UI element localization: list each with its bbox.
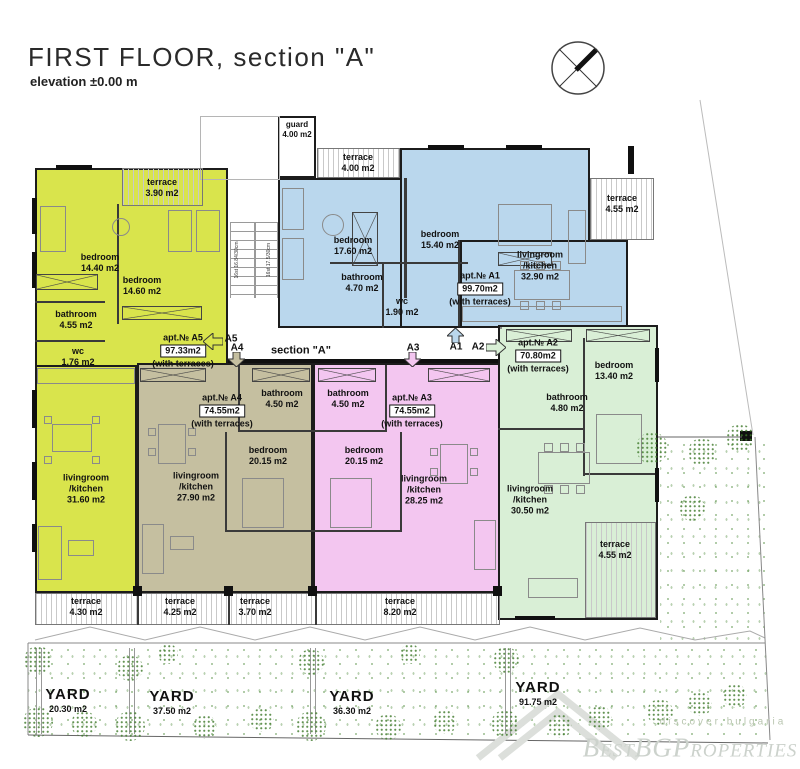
room-label-bathroom: bathroom4.50 m2 bbox=[327, 388, 369, 410]
room-name: bedroom bbox=[334, 235, 373, 245]
room-area: 4.25 m2 bbox=[163, 607, 196, 617]
chair-icon bbox=[188, 448, 196, 456]
bush-icon bbox=[433, 710, 457, 734]
sofa-icon bbox=[528, 578, 578, 598]
room-label-bedroom: bedroom14.60 m2 bbox=[123, 275, 162, 297]
yard-name: YARD bbox=[149, 688, 194, 705]
room-area: 4.50 m2 bbox=[265, 399, 298, 409]
floor-plan: FIRST FLOOR, section "A" elevation ±0.00… bbox=[0, 0, 800, 769]
wall bbox=[404, 178, 407, 298]
room-label-livingroom: livingroom/kitchen32.90 m2 bbox=[517, 250, 563, 283]
room-label-bedroom: bedroom15.40 m2 bbox=[421, 229, 460, 251]
entry-lobby bbox=[200, 116, 280, 180]
room-name: bedroom bbox=[595, 360, 634, 370]
bush-icon bbox=[400, 644, 420, 664]
bush-icon bbox=[491, 710, 519, 738]
arrow-label-a1: A1 bbox=[450, 342, 463, 353]
apt-number: apt.№ A2 bbox=[518, 338, 558, 348]
bush-icon bbox=[726, 424, 754, 452]
room-name: terrace bbox=[71, 596, 101, 606]
room-name: /kitchen bbox=[513, 495, 547, 505]
wall bbox=[35, 340, 105, 342]
apt-note: (with terraces) bbox=[507, 364, 569, 374]
room-name: bedroom bbox=[421, 229, 460, 239]
bush-icon bbox=[250, 708, 274, 732]
room-name: bathroom bbox=[341, 272, 383, 282]
apt-number: apt.№ A3 bbox=[392, 393, 432, 403]
room-name: bedroom bbox=[345, 445, 384, 455]
stair-divider bbox=[254, 222, 256, 298]
wall bbox=[313, 430, 387, 432]
sofa-icon bbox=[38, 526, 62, 580]
apt-number: apt.№ A1 bbox=[460, 271, 500, 281]
room-label-bathroom: bathroom4.50 m2 bbox=[261, 388, 303, 410]
yard-label: YARD20.30 m2 bbox=[45, 688, 90, 716]
kitchen-counter-icon bbox=[37, 368, 135, 384]
stair-spec-label: 16st 16.84/30cm bbox=[234, 242, 240, 279]
window-mark bbox=[628, 146, 634, 174]
bed-icon bbox=[596, 414, 642, 464]
bush-icon bbox=[636, 432, 668, 464]
room-area: 3.90 m2 bbox=[145, 188, 178, 198]
room-label-wc: wc1.76 m2 bbox=[61, 346, 94, 368]
room-name: livingroom bbox=[507, 484, 553, 494]
wall bbox=[330, 262, 468, 264]
room-name: livingroom bbox=[63, 473, 109, 483]
room-name: terrace bbox=[165, 596, 195, 606]
bush-icon bbox=[493, 647, 519, 673]
elevation-label: elevation ±0.00 m bbox=[30, 74, 138, 89]
bush-icon bbox=[193, 715, 217, 739]
room-label-livingroom: livingroom/kitchen30.50 m2 bbox=[507, 484, 553, 517]
bed-icon bbox=[242, 478, 284, 528]
room-label-bedroom: bedroom20.15 m2 bbox=[345, 445, 384, 467]
chair-icon bbox=[470, 448, 478, 456]
room-area: 14.40 m2 bbox=[81, 263, 119, 273]
room-area: 20.15 m2 bbox=[345, 456, 383, 466]
room-name: livingroom bbox=[401, 474, 447, 484]
room-name: bedroom bbox=[123, 275, 162, 285]
wardrobe-icon bbox=[252, 368, 310, 382]
chair-icon bbox=[470, 468, 478, 476]
arrow-label-a2: A2 bbox=[472, 342, 485, 353]
apartment-label-a4: apt.№ A474.55m2(with terraces) bbox=[191, 393, 253, 430]
chair-icon bbox=[560, 485, 569, 494]
apartment-label-a3: apt.№ A374.55m2(with terraces) bbox=[381, 393, 443, 430]
room-label-bedroom: bedroom17.60 m2 bbox=[334, 235, 373, 257]
wardrobe-icon bbox=[318, 368, 376, 382]
table-icon bbox=[158, 424, 186, 464]
table-icon bbox=[112, 218, 130, 236]
yard-label: YARD91.75 m2 bbox=[515, 681, 560, 709]
room-name: bathroom bbox=[261, 388, 303, 398]
room-label-bedroom: bedroom20.15 m2 bbox=[249, 445, 288, 467]
room-area: 32.90 m2 bbox=[521, 272, 559, 282]
window-mark bbox=[32, 462, 37, 500]
room-name: guard bbox=[286, 120, 308, 129]
chair-icon bbox=[148, 428, 156, 436]
apt-area: 74.55m2 bbox=[199, 405, 245, 418]
yard-label: YARD36.30 m2 bbox=[329, 690, 374, 718]
chair-icon bbox=[576, 443, 585, 452]
room-name: wc bbox=[396, 296, 408, 306]
terrace-label: terrace4.55 m2 bbox=[605, 193, 638, 215]
chair-icon bbox=[576, 485, 585, 494]
bush-icon bbox=[375, 714, 401, 740]
room-area: 13.40 m2 bbox=[595, 371, 633, 381]
bed-icon bbox=[40, 206, 66, 252]
sofa-icon bbox=[568, 210, 586, 264]
wardrobe-icon bbox=[428, 368, 490, 382]
terrace-label: terrace4.55 m2 bbox=[598, 539, 631, 561]
room-name: /kitchen bbox=[69, 484, 103, 494]
chair-icon bbox=[544, 443, 553, 452]
apt-note: (with terraces) bbox=[152, 359, 214, 369]
room-area: 30.50 m2 bbox=[511, 506, 549, 516]
room-name: bathroom bbox=[327, 388, 369, 398]
yard-name: YARD bbox=[515, 679, 560, 696]
page-title: FIRST FLOOR, section "A" bbox=[28, 42, 375, 73]
room-label-livingroom: livingroom/kitchen31.60 m2 bbox=[63, 473, 109, 506]
column bbox=[224, 586, 233, 596]
sofa-icon bbox=[142, 524, 164, 574]
room-area: 4.55 m2 bbox=[59, 320, 92, 330]
arrow-a2-icon bbox=[486, 339, 506, 356]
yard-name: YARD bbox=[45, 686, 90, 703]
bush-icon bbox=[298, 649, 324, 675]
room-label-livingroom: livingroom/kitchen27.90 m2 bbox=[173, 471, 219, 504]
chair-icon bbox=[92, 456, 100, 464]
window-mark bbox=[515, 616, 555, 620]
wardrobe-icon bbox=[122, 306, 202, 320]
room-name: terrace bbox=[147, 177, 177, 187]
terrace-label: terrace4.25 m2 bbox=[163, 596, 196, 618]
apartment-label-a1: apt.№ A199.70m2(with terraces) bbox=[449, 271, 511, 308]
wall bbox=[238, 430, 313, 432]
room-label-bedroom: bedroom13.40 m2 bbox=[595, 360, 634, 382]
bush-icon bbox=[548, 714, 572, 738]
terrace-label: terrace8.20 m2 bbox=[383, 596, 416, 618]
room-name: /kitchen bbox=[179, 482, 213, 492]
terrace-divider bbox=[315, 593, 317, 625]
wall bbox=[583, 473, 658, 475]
table-icon bbox=[322, 214, 344, 236]
wall bbox=[35, 301, 105, 303]
wall bbox=[225, 530, 313, 532]
yard-area: 37.50 m2 bbox=[153, 706, 191, 716]
room-label-guard: guard4.00 m2 bbox=[282, 120, 311, 140]
room-name: terrace bbox=[607, 193, 637, 203]
room-area: 4.00 m2 bbox=[341, 163, 374, 173]
column bbox=[133, 586, 142, 596]
terrace-divider bbox=[228, 593, 230, 625]
room-area: 17.60 m2 bbox=[334, 246, 372, 256]
apartment-label-a2: apt.№ A270.80m2(with terraces) bbox=[507, 338, 569, 375]
coffee-table-icon bbox=[170, 536, 194, 550]
room-area: 14.60 m2 bbox=[123, 286, 161, 296]
yard-label: YARD37.50 m2 bbox=[149, 690, 194, 718]
terrace-label: terrace3.90 m2 bbox=[145, 177, 178, 199]
yard-area: 36.30 m2 bbox=[333, 706, 371, 716]
watermark-tagline: discover bulgaria bbox=[660, 717, 787, 728]
room-name: wc bbox=[72, 346, 84, 356]
sofa-icon bbox=[474, 520, 496, 570]
room-name: livingroom bbox=[517, 250, 563, 260]
window-mark bbox=[655, 348, 659, 382]
room-label-bedroom: bedroom14.40 m2 bbox=[81, 252, 120, 274]
bed-icon bbox=[330, 478, 372, 528]
wardrobe-icon bbox=[36, 274, 98, 290]
room-name: terrace bbox=[240, 596, 270, 606]
room-area: 3.70 m2 bbox=[238, 607, 271, 617]
bush-icon bbox=[588, 706, 612, 730]
bush-icon bbox=[679, 495, 705, 521]
chair-icon bbox=[44, 456, 52, 464]
table-icon bbox=[52, 424, 92, 452]
room-name: terrace bbox=[385, 596, 415, 606]
apt-number: apt.№ A4 bbox=[202, 393, 242, 403]
room-name: /kitchen bbox=[523, 261, 557, 271]
room-area: 4.00 m2 bbox=[282, 130, 311, 139]
chair-icon bbox=[430, 448, 438, 456]
bush-icon bbox=[24, 646, 52, 674]
bed-icon bbox=[282, 188, 304, 230]
column bbox=[308, 586, 317, 596]
bed-icon bbox=[168, 210, 192, 252]
terrace-label: terrace4.00 m2 bbox=[341, 152, 374, 174]
terrace-label: terrace3.70 m2 bbox=[238, 596, 271, 618]
chair-icon bbox=[560, 443, 569, 452]
bush-icon bbox=[115, 711, 145, 741]
apt-note: (with terraces) bbox=[449, 297, 511, 307]
bed-icon bbox=[282, 238, 304, 280]
coffee-table-icon bbox=[68, 540, 94, 556]
room-name: bedroom bbox=[81, 252, 120, 262]
yard-name: YARD bbox=[329, 688, 374, 705]
room-label-livingroom: livingroom/kitchen28.25 m2 bbox=[401, 474, 447, 507]
window-mark bbox=[56, 165, 92, 170]
room-name: bedroom bbox=[249, 445, 288, 455]
apt-area: 70.80m2 bbox=[515, 350, 561, 363]
terrace-a2-bottom bbox=[585, 522, 656, 618]
room-name: livingroom bbox=[173, 471, 219, 481]
room-area: 8.20 m2 bbox=[383, 607, 416, 617]
section-label: section "A" bbox=[271, 346, 331, 357]
room-label-wc: wc1.90 m2 bbox=[385, 296, 418, 318]
bush-icon bbox=[688, 438, 716, 466]
room-area: 15.40 m2 bbox=[421, 240, 459, 250]
apt-note: (with terraces) bbox=[381, 419, 443, 429]
room-area: 1.90 m2 bbox=[385, 307, 418, 317]
room-area: 1.76 m2 bbox=[61, 357, 94, 367]
wall bbox=[313, 530, 401, 532]
window-mark bbox=[506, 145, 542, 150]
room-area: 4.55 m2 bbox=[598, 550, 631, 560]
yard-area: 91.75 m2 bbox=[519, 697, 557, 707]
room-area: 4.30 m2 bbox=[69, 607, 102, 617]
bush-icon bbox=[117, 655, 143, 681]
stair-spec-label: 16st 17.5/30cm bbox=[266, 243, 272, 277]
wall bbox=[498, 428, 584, 430]
window-mark bbox=[655, 468, 659, 502]
room-name: terrace bbox=[343, 152, 373, 162]
room-area: 4.70 m2 bbox=[345, 283, 378, 293]
dining-table-icon bbox=[538, 452, 590, 484]
room-label-bathroom: bathroom4.70 m2 bbox=[341, 272, 383, 294]
wardrobe-icon bbox=[586, 329, 650, 342]
wall bbox=[225, 432, 227, 532]
apt-area: 99.70m2 bbox=[457, 283, 503, 296]
kitchen-counter-icon bbox=[500, 327, 502, 329]
window-mark bbox=[32, 524, 37, 552]
north-compass-icon bbox=[546, 36, 610, 100]
window-mark bbox=[32, 198, 37, 234]
room-label-bathroom: bathroom4.80 m2 bbox=[546, 392, 588, 414]
arrow-a4-icon bbox=[228, 352, 245, 367]
apt-number: apt.№ A5 bbox=[163, 333, 203, 343]
room-area: 4.50 m2 bbox=[331, 399, 364, 409]
room-name: /kitchen bbox=[407, 485, 441, 495]
terrace-divider bbox=[137, 593, 139, 625]
chair-icon bbox=[92, 416, 100, 424]
garden-ground bbox=[660, 438, 766, 640]
room-area: 28.25 m2 bbox=[405, 496, 443, 506]
arrow-a5-icon bbox=[203, 333, 223, 350]
room-label-bathroom: bathroom4.55 m2 bbox=[55, 309, 97, 331]
window-mark bbox=[428, 145, 464, 150]
wardrobe-icon bbox=[140, 368, 206, 382]
room-area: 20.15 m2 bbox=[249, 456, 287, 466]
room-name: terrace bbox=[600, 539, 630, 549]
chair-icon bbox=[44, 416, 52, 424]
room-name: bathroom bbox=[546, 392, 588, 402]
bush-icon bbox=[296, 711, 326, 741]
bush-icon bbox=[158, 644, 178, 664]
apt-area: 97.33m2 bbox=[160, 345, 206, 358]
room-area: 31.60 m2 bbox=[67, 495, 105, 505]
column bbox=[493, 586, 502, 596]
arrow-a3-icon bbox=[404, 352, 421, 367]
terrace-label: terrace4.30 m2 bbox=[69, 596, 102, 618]
room-area: 4.80 m2 bbox=[550, 403, 583, 413]
bed-icon bbox=[498, 204, 552, 246]
bush-icon bbox=[723, 684, 747, 708]
room-area: 4.55 m2 bbox=[605, 204, 638, 214]
kitchen-counter-icon bbox=[462, 306, 622, 322]
corridor-wall bbox=[228, 359, 498, 363]
room-area: 27.90 m2 bbox=[177, 493, 215, 503]
bed-icon bbox=[196, 210, 220, 252]
window-mark bbox=[32, 390, 37, 428]
apt-area: 74.55m2 bbox=[389, 405, 435, 418]
bush-icon bbox=[688, 692, 712, 716]
chair-icon bbox=[148, 448, 156, 456]
yard-area: 20.30 m2 bbox=[49, 704, 87, 714]
apt-note: (with terraces) bbox=[191, 419, 253, 429]
room-name: bathroom bbox=[55, 309, 97, 319]
watermark-brand: BestBGProperties bbox=[583, 733, 798, 764]
